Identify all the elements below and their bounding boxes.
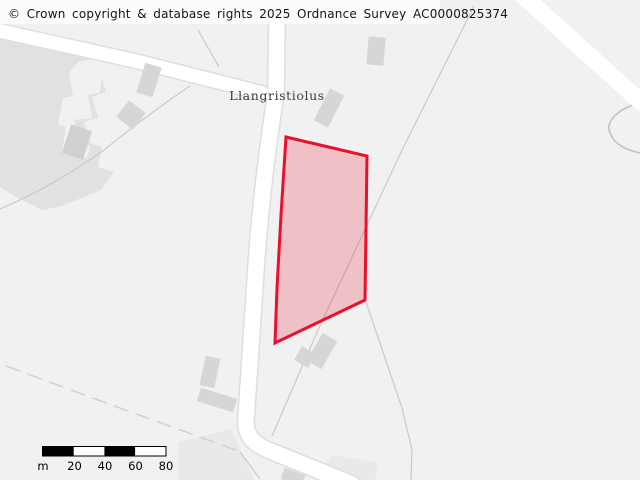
map-canvas: © Crown copyright & database rights 2025… — [0, 0, 640, 480]
scale-bar-segment — [43, 447, 74, 456]
copyright-text: © Crown copyright & database rights 2025… — [8, 7, 508, 21]
scale-bar-segment — [104, 447, 135, 456]
scale-tick-label: 60 — [128, 459, 143, 473]
building — [366, 36, 385, 65]
place-label: Llangristiolus — [229, 88, 325, 103]
os-map-extract: © Crown copyright & database rights 2025… — [0, 0, 640, 480]
scale-tick-label: 40 — [98, 459, 113, 473]
scale-tick-label: 80 — [159, 459, 174, 473]
scale-tick-label: 20 — [67, 459, 82, 473]
scale-unit-label: m — [37, 459, 48, 473]
